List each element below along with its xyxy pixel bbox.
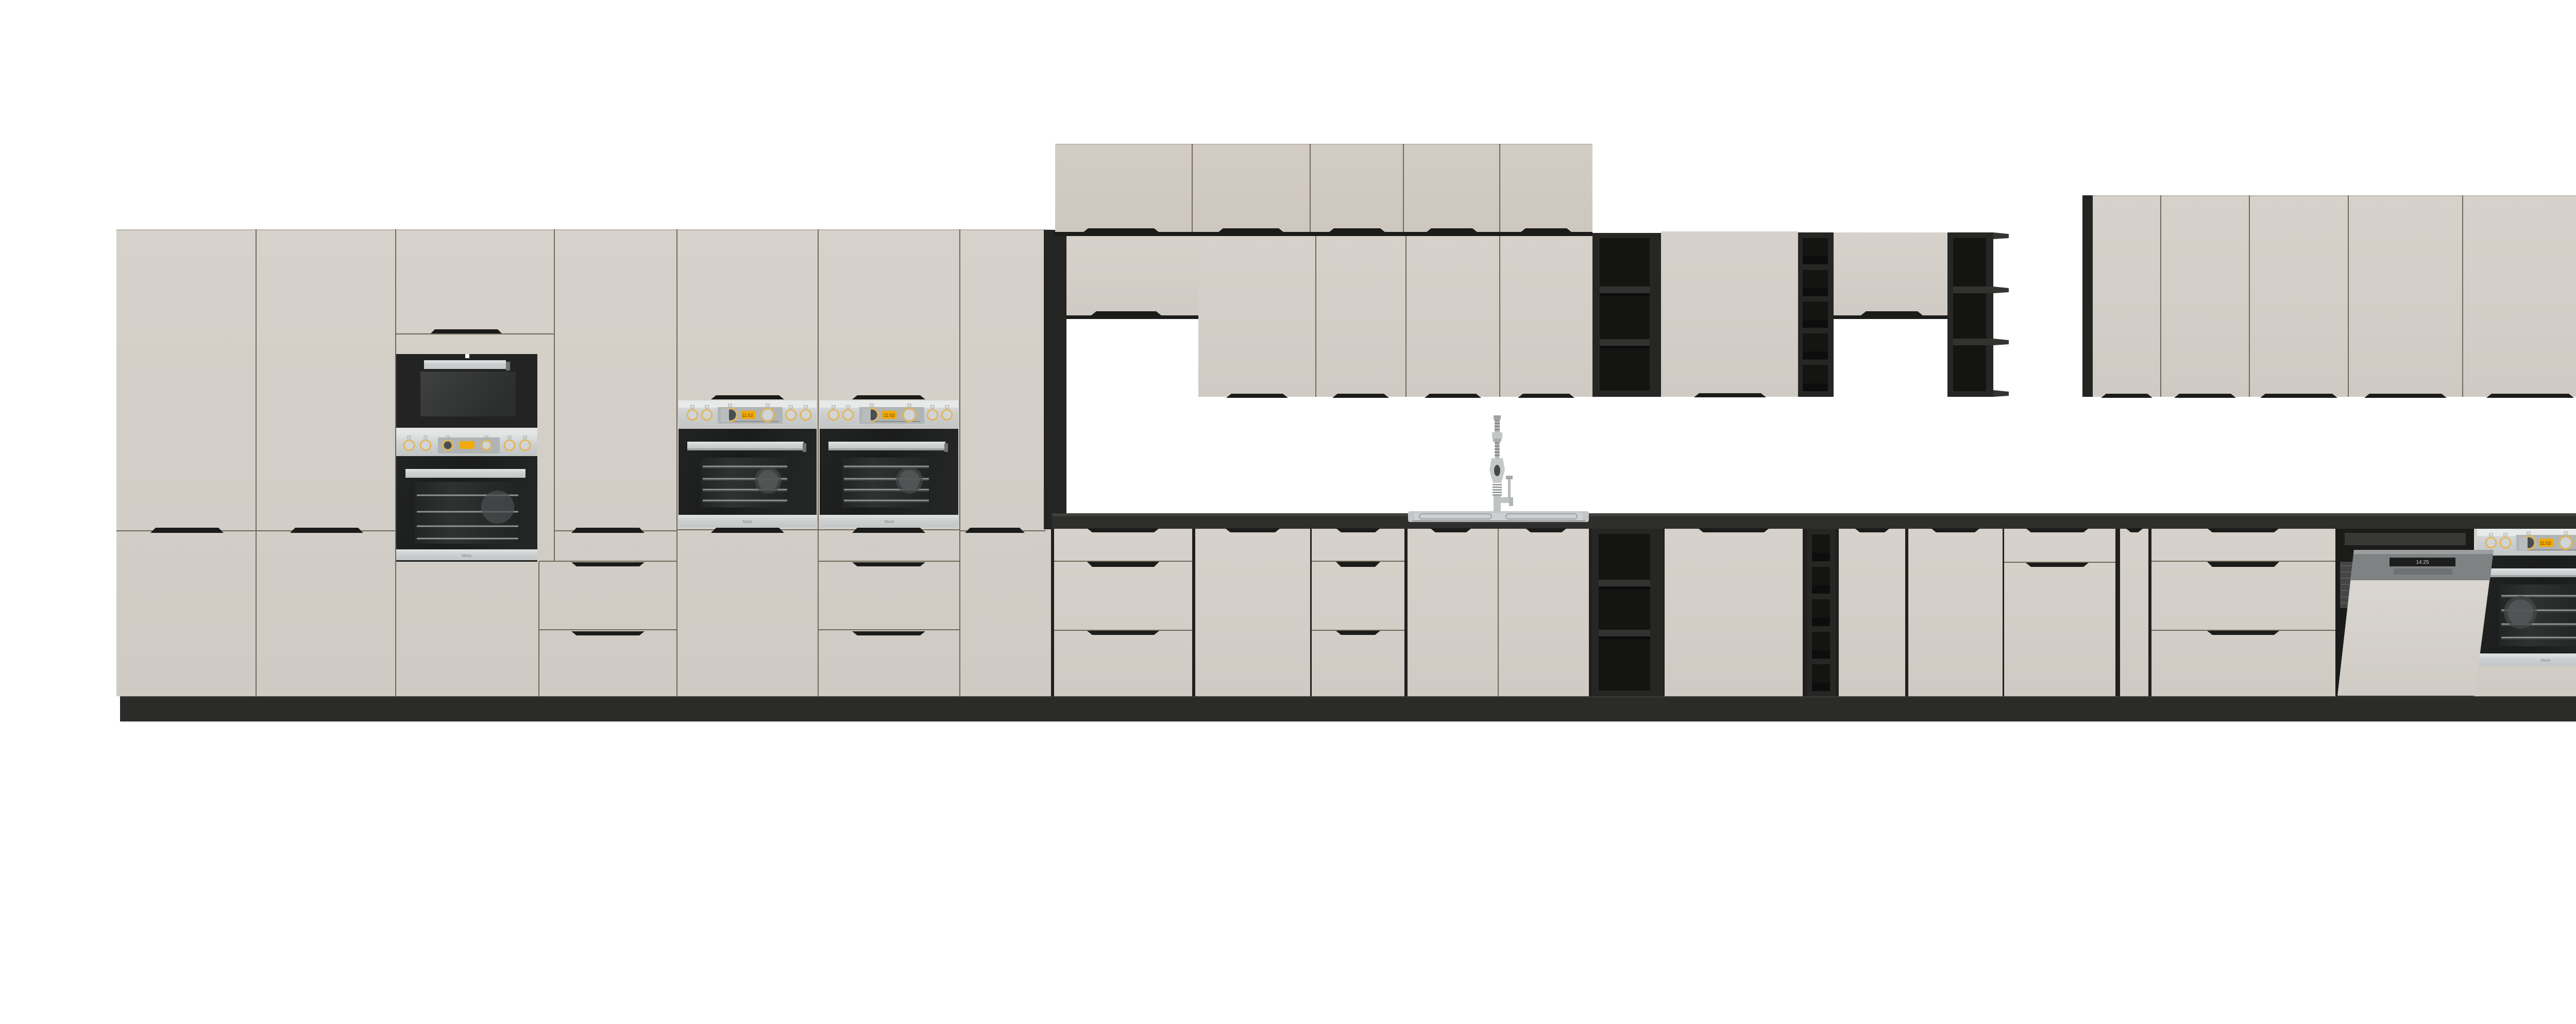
svg-text:Miele: Miele (462, 553, 472, 558)
svg-text:14:25: 14:25 (2416, 560, 2429, 565)
svg-text:11:02: 11:02 (2540, 541, 2551, 546)
svg-text:11:02: 11:02 (884, 413, 895, 418)
svg-text:Miele: Miele (884, 519, 894, 524)
svg-text:11:02: 11:02 (742, 413, 753, 418)
svg-text:Miele: Miele (2540, 658, 2551, 663)
svg-text:Miele: Miele (742, 519, 753, 524)
